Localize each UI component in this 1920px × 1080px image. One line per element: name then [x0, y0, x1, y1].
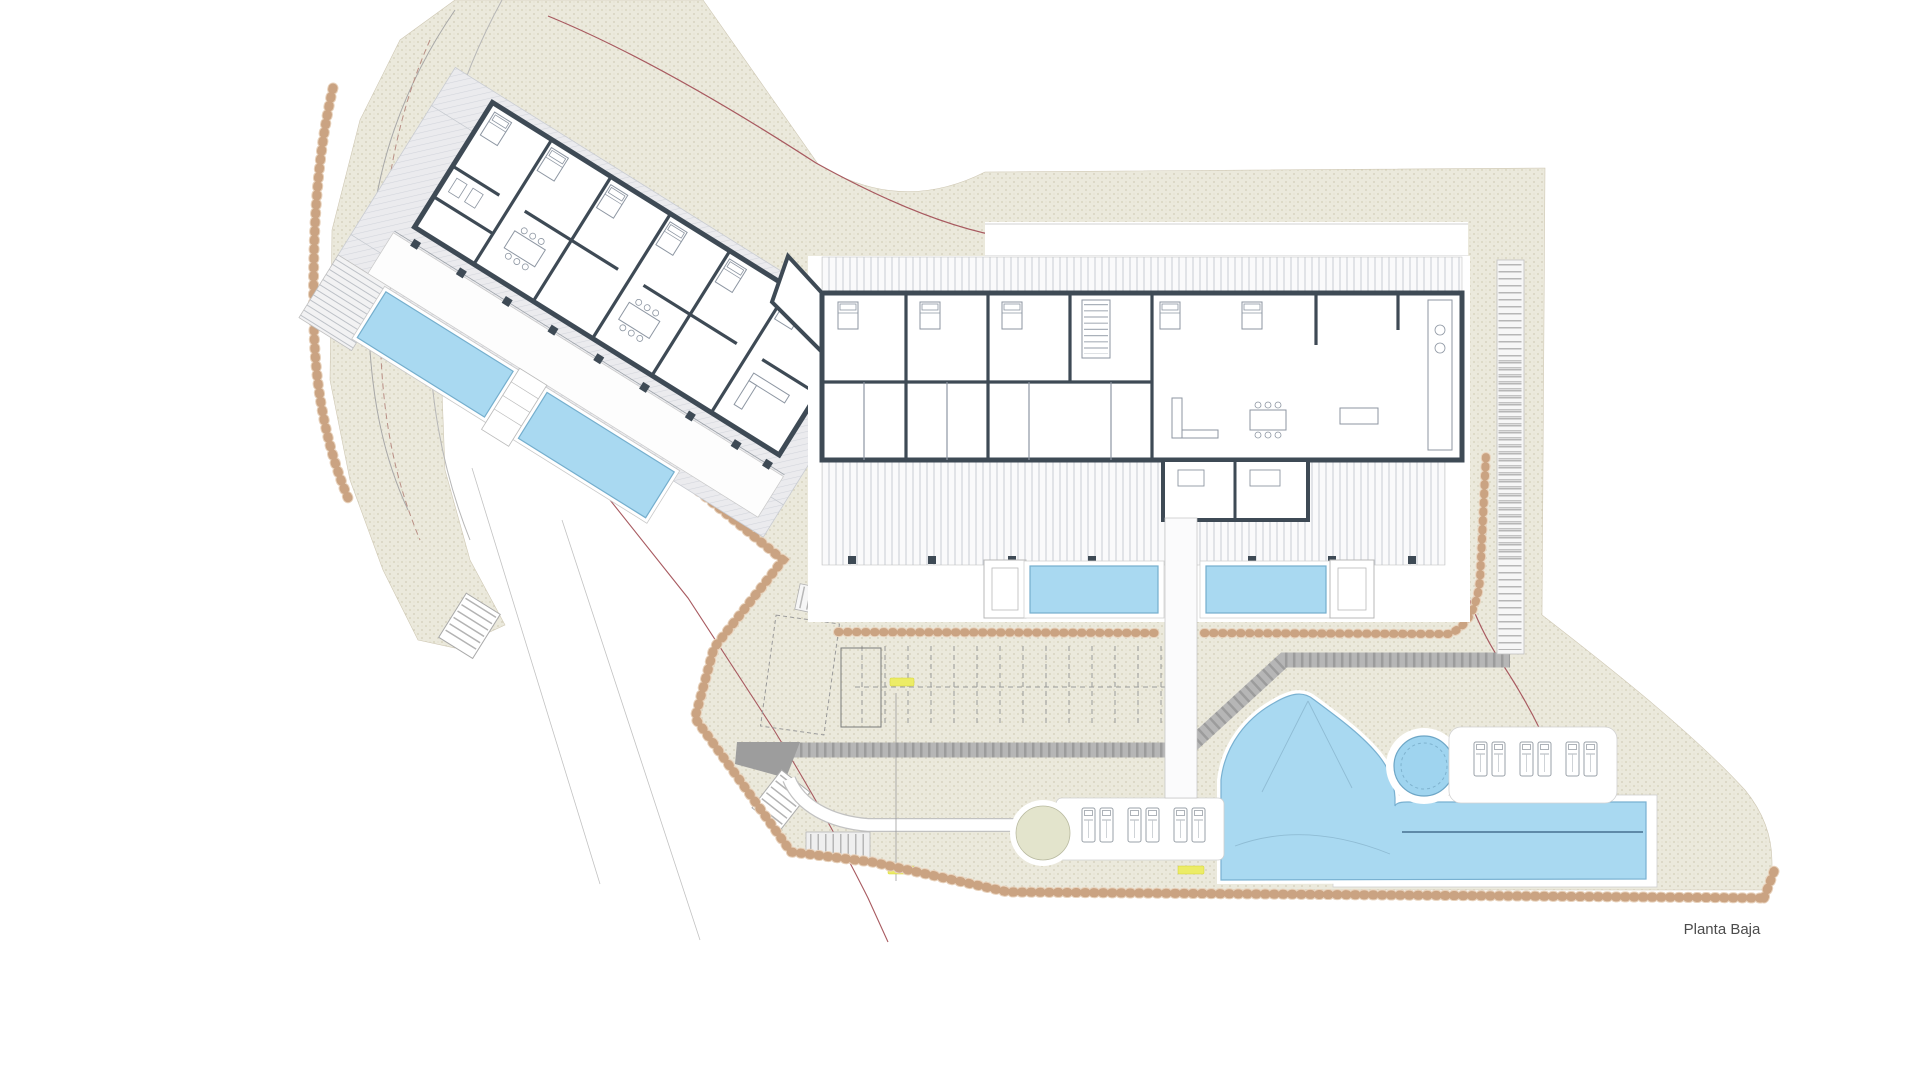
sun-lounger — [1128, 808, 1141, 842]
private-pool — [1206, 566, 1326, 613]
sun-lounger — [1474, 742, 1487, 776]
elevation-mark — [1178, 866, 1204, 874]
sun-lounger — [1492, 742, 1505, 776]
east-block-walls — [822, 293, 1462, 460]
sun-lounger — [1174, 808, 1187, 842]
upper-terrace-deck — [822, 257, 1462, 293]
elevation-mark — [890, 678, 914, 686]
plan-title: Planta Baja — [1684, 921, 1761, 938]
sun-lounger — [1082, 808, 1095, 842]
planting-circle — [1010, 800, 1076, 866]
sun-lounger-deck-lower — [1056, 798, 1224, 860]
east-stair-strip — [1497, 260, 1524, 654]
sun-lounger — [1584, 742, 1597, 776]
sun-lounger — [1538, 742, 1551, 776]
margin-band — [985, 222, 1468, 258]
site-plan-sheet: Planta Baja — [0, 0, 1920, 1080]
property-line — [562, 520, 700, 940]
private-pool — [1030, 566, 1158, 613]
property-line — [472, 468, 600, 884]
site-plan-drawing: Planta Baja — [0, 0, 1920, 1080]
pool-end-cap — [1330, 560, 1374, 618]
sun-lounger — [1566, 742, 1579, 776]
pool-access-path — [1165, 518, 1197, 798]
kitchen-island — [1340, 408, 1378, 424]
sun-lounger — [1100, 808, 1113, 842]
sun-lounger — [1192, 808, 1205, 842]
kitchen-counter — [1428, 300, 1452, 450]
sun-lounger-deck-upper — [1449, 727, 1617, 803]
sun-lounger — [1146, 808, 1159, 842]
lower-terrace-deck — [822, 460, 1445, 565]
sun-lounger — [1520, 742, 1533, 776]
pool-end-cap — [984, 560, 1026, 618]
